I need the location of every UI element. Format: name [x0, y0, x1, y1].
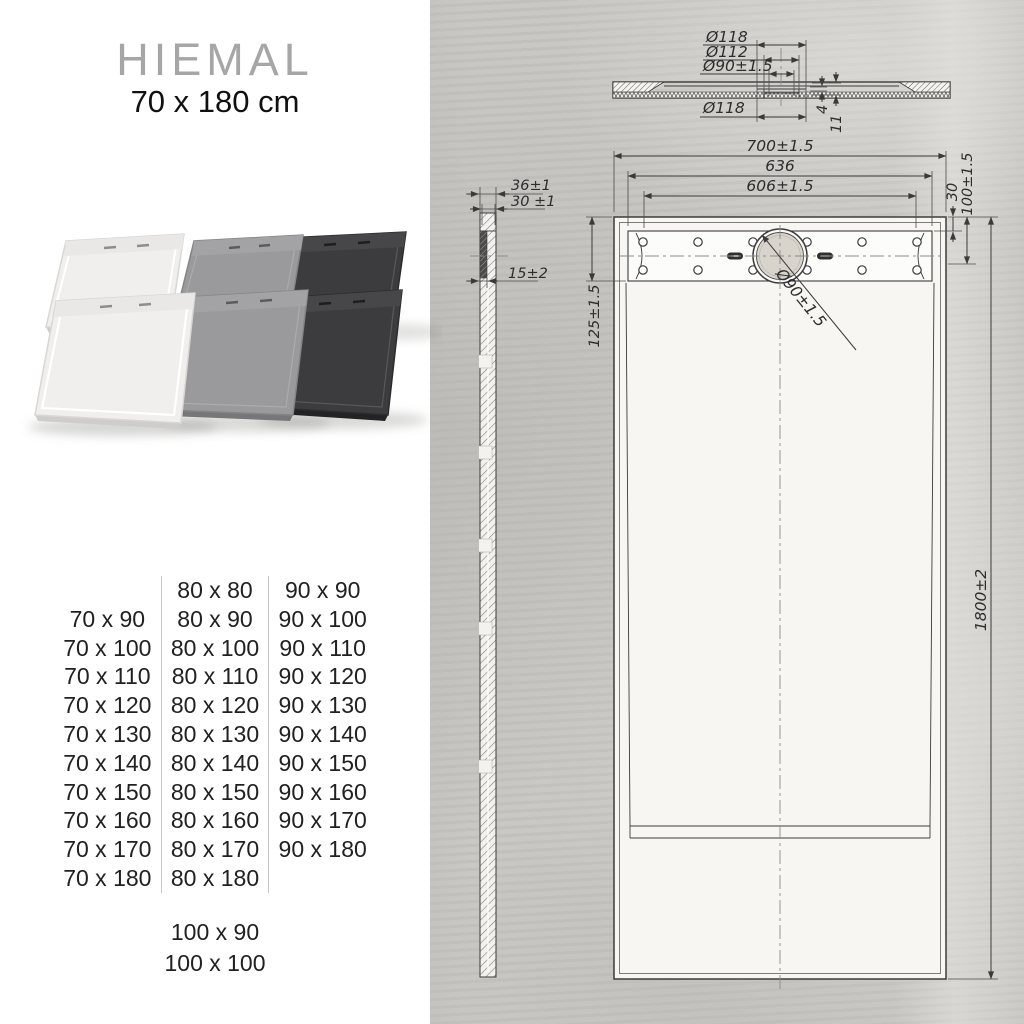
section-edge-right: [899, 82, 950, 92]
dim-depth-11: 11: [829, 115, 845, 133]
dim-width-outer: 636: [765, 157, 795, 175]
dim-offset-100: 100±1.5: [960, 153, 976, 216]
section-view: Ø118 Ø112 Ø90±1.5 Ø118 4 11: [613, 28, 950, 133]
technical-drawing: Ø118 Ø112 Ø90±1.5 Ø118 4 11: [0, 0, 1024, 1024]
dim-dia118-bottom: Ø118: [702, 99, 745, 117]
section-edge-left: [613, 82, 664, 92]
dim-side-36: 36±1: [511, 178, 551, 194]
dim-width-overall: 700±1.5: [746, 137, 813, 155]
dim-offset-30: 30: [945, 183, 961, 201]
dim-side-15: 15±2: [508, 266, 548, 282]
dim-side-30: 30 ±1: [511, 194, 555, 210]
dim-length-overall: 1800±2: [972, 569, 990, 631]
product-sheet: HIEMAL 70 x 180 cm: [0, 0, 1024, 1024]
dim-dia90-section: Ø90±1.5: [702, 57, 773, 75]
side-view: 36±1 30 ±1 15±2: [466, 178, 555, 977]
dim-width-inner: 606±1.5: [746, 177, 813, 195]
plan-view: Ø90±1.5 700±1.5 636 606±1.5 30 100±1.: [586, 137, 998, 992]
side-drain-strip: [480, 231, 487, 278]
dim-depth-4: 4: [815, 105, 831, 114]
dim-offset-125: 125±1.5: [587, 285, 603, 348]
